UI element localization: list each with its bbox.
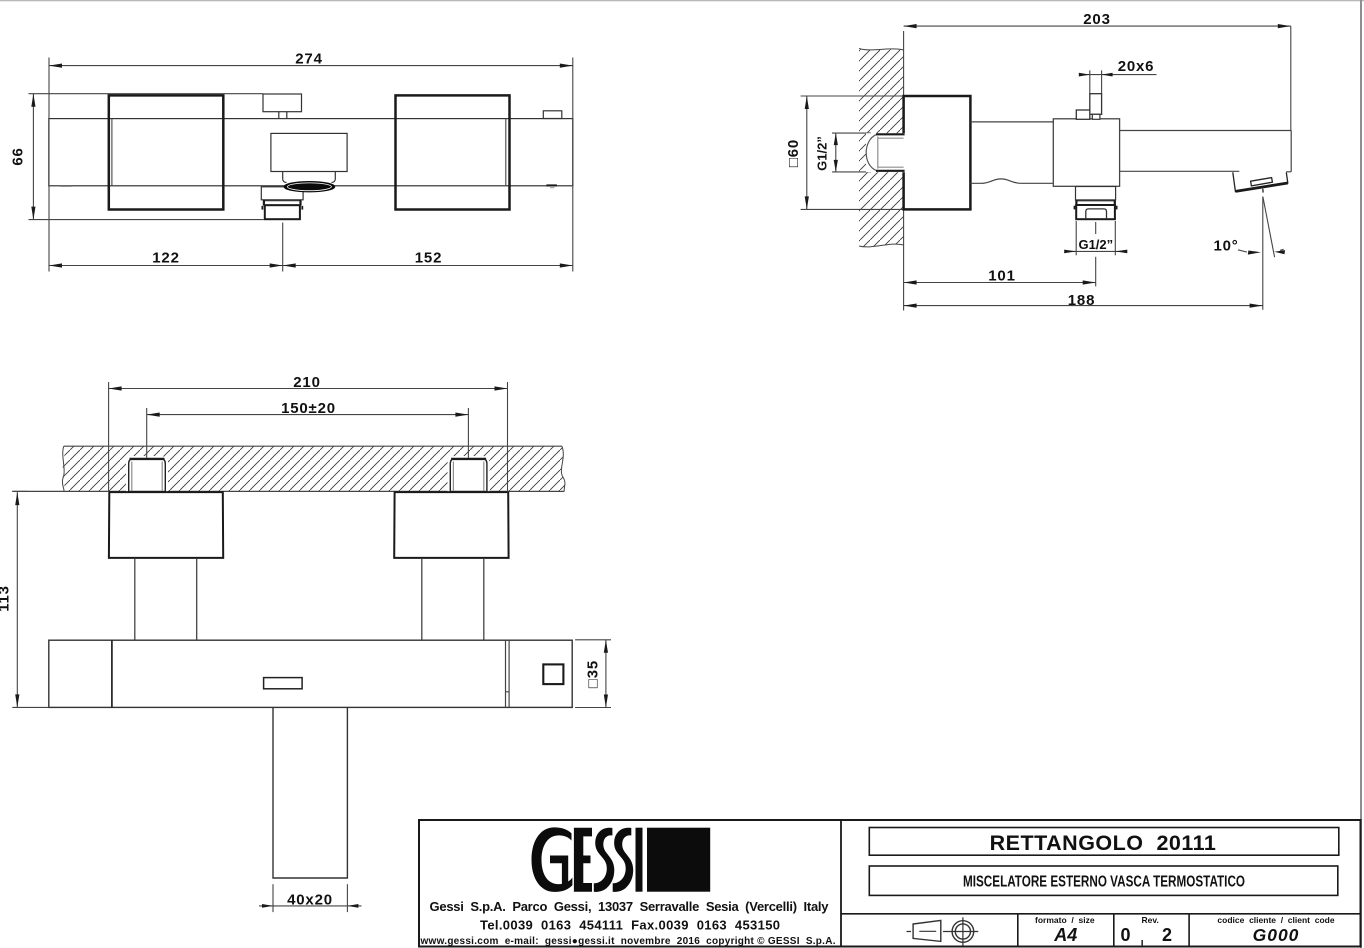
svg-text:274: 274 [295,51,322,68]
svg-text:www.gessi.com e-mail: gessi●: www.gessi.com e-mail: gessi●gessi.it nov… [420,936,836,947]
svg-text:188: 188 [1068,292,1095,309]
svg-text:20x6: 20x6 [1118,58,1155,75]
svg-text:□35: □35 [585,660,602,688]
svg-text:Gessi S.p.A. Parco Gessi,: Gessi S.p.A. Parco Gessi, 13037 Serraval… [430,899,830,914]
svg-text:codice cliente / client co: codice cliente / client code [1217,915,1334,925]
svg-text:122: 122 [152,250,179,267]
svg-text:10°: 10° [1213,238,1238,255]
svg-text:G000: G000 [1253,925,1300,945]
svg-text:40x20: 40x20 [287,892,333,909]
svg-text:G1/2”: G1/2” [815,136,830,171]
svg-text:2: 2 [1162,925,1172,945]
svg-text:101: 101 [988,268,1015,285]
svg-text:66: 66 [10,147,27,165]
svg-text:MISCELATORE ESTERNO VASCA TERM: MISCELATORE ESTERNO VASCA TERMOSTATICO [963,874,1245,891]
svg-text:113: 113 [0,585,13,612]
svg-text:formato / size: formato / size [1035,915,1095,925]
svg-text:210: 210 [293,374,320,391]
svg-text:203: 203 [1083,11,1110,28]
svg-text:152: 152 [415,250,442,267]
svg-text:G1/2”: G1/2” [1078,237,1113,252]
svg-text:Tel.0039 0163 454111 Fax.00: Tel.0039 0163 454111 Fax.0039 0163 45315… [480,918,780,933]
svg-text:RETTANGOLO 20111: RETTANGOLO 20111 [990,831,1217,855]
svg-text:Rev.: Rev. [1142,915,1159,925]
svg-text:□60: □60 [785,139,802,167]
svg-text:A4: A4 [1053,925,1077,945]
svg-text:0: 0 [1120,925,1130,945]
svg-text:150±20: 150±20 [281,400,336,417]
